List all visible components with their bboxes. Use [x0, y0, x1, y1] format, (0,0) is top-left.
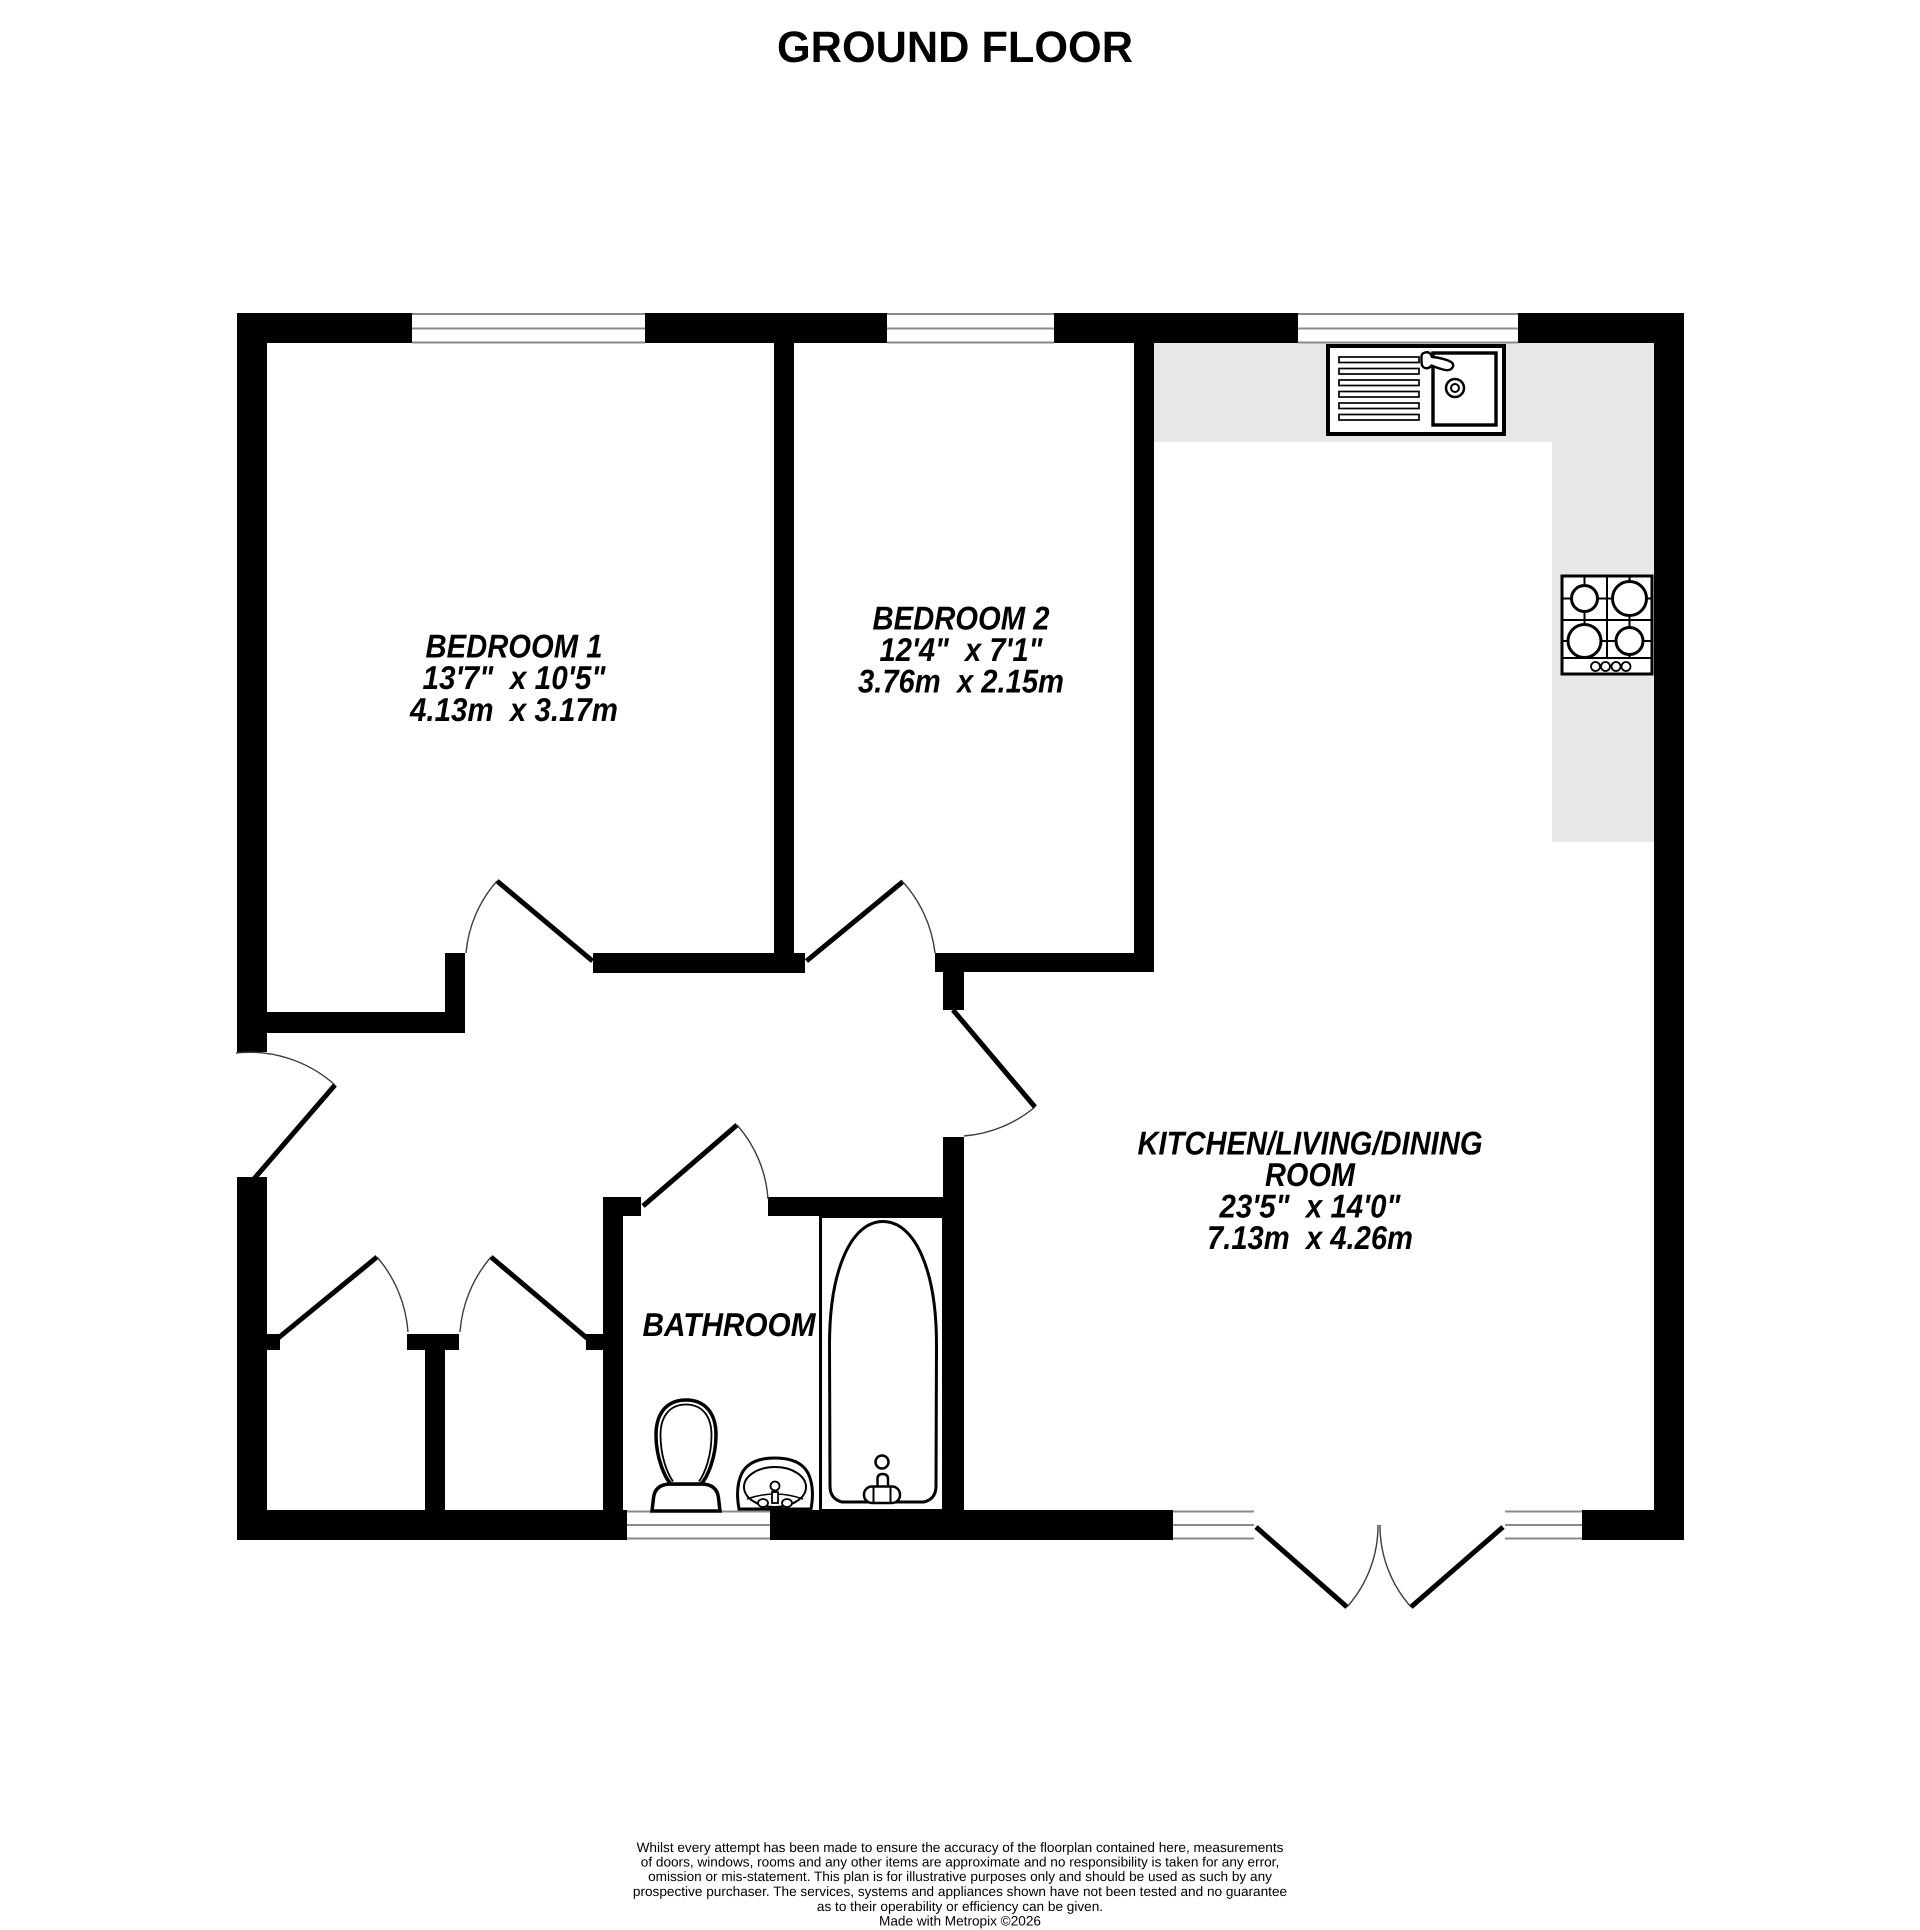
- svg-text:omission or mis-statement. Thi: omission or mis-statement. This plan is …: [648, 1869, 1272, 1884]
- svg-text:BATHROOM: BATHROOM: [643, 1306, 817, 1343]
- svg-text:3.76m x 2.15m: 3.76m x 2.15m: [858, 663, 1064, 700]
- svg-text:prospective purchaser. The ser: prospective purchaser. The services, sys…: [633, 1884, 1287, 1899]
- svg-text:7.13m x 4.26m: 7.13m x 4.26m: [1207, 1219, 1413, 1256]
- svg-text:Whilst every attempt has been: Whilst every attempt has been made to en…: [637, 1840, 1284, 1855]
- svg-text:Made with Metropix ©2026: Made with Metropix ©2026: [879, 1914, 1041, 1929]
- svg-text:GROUND FLOOR: GROUND FLOOR: [777, 23, 1133, 72]
- svg-text:of doors, windows, rooms and a: of doors, windows, rooms and any other i…: [641, 1854, 1279, 1869]
- svg-text:as to their operability or eff: as to their operability or efficiency ca…: [817, 1899, 1103, 1914]
- svg-text:4.13m x 3.17m: 4.13m x 3.17m: [409, 691, 618, 728]
